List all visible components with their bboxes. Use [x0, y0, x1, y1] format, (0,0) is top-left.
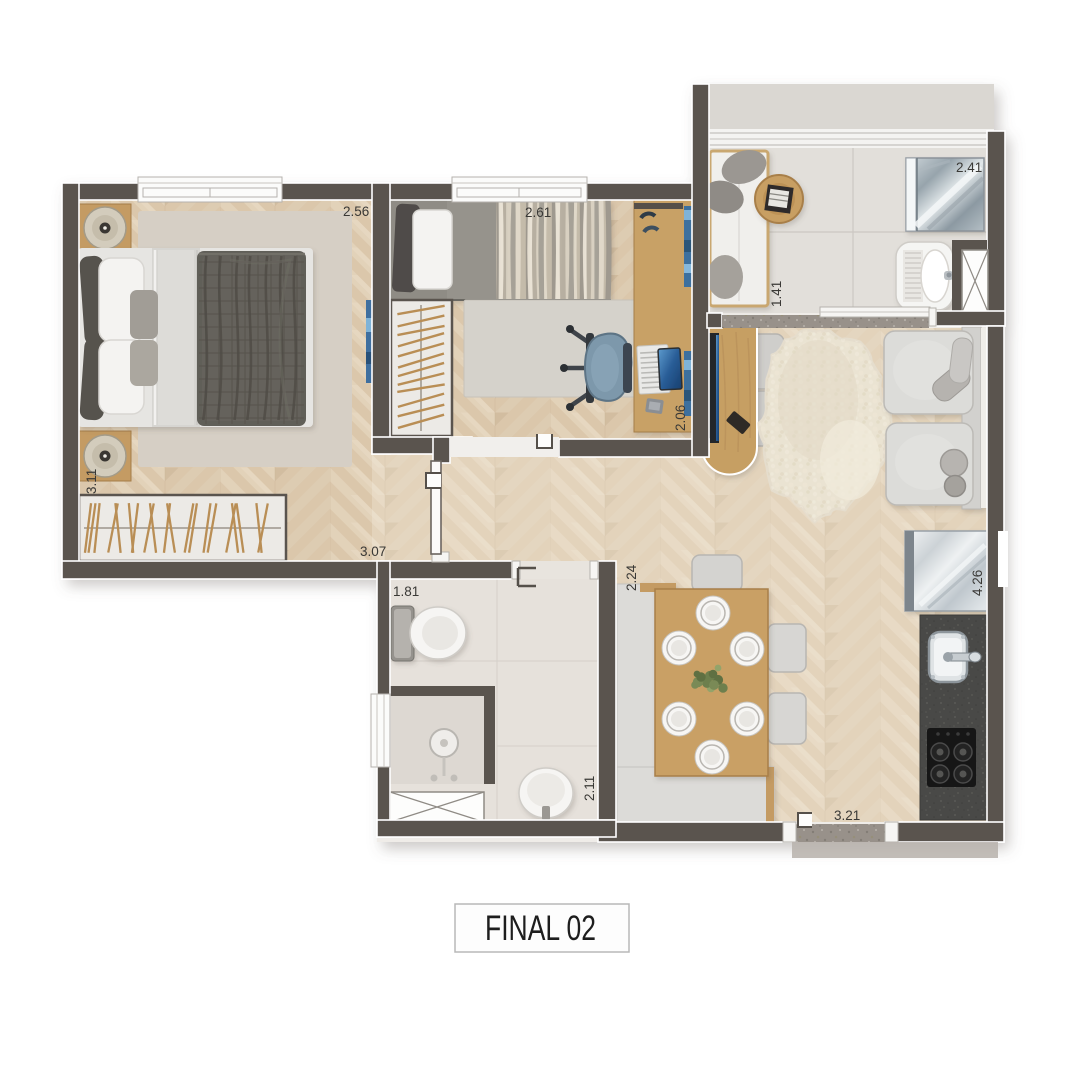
svg-text:2.56: 2.56: [343, 204, 369, 219]
svg-text:3.11: 3.11: [84, 469, 99, 494]
svg-text:2.41: 2.41: [956, 160, 982, 175]
svg-text:2.06: 2.06: [673, 405, 688, 431]
svg-text:2.61: 2.61: [525, 205, 551, 220]
svg-text:1.41: 1.41: [769, 281, 784, 307]
svg-text:2.11: 2.11: [582, 776, 597, 801]
svg-text:3.07: 3.07: [360, 544, 386, 559]
svg-text:3.21: 3.21: [834, 808, 860, 823]
svg-text:4.26: 4.26: [970, 570, 985, 596]
svg-text:1.81: 1.81: [393, 584, 419, 599]
svg-text:2.24: 2.24: [624, 564, 639, 591]
svg-text:FINAL 02: FINAL 02: [485, 909, 596, 948]
